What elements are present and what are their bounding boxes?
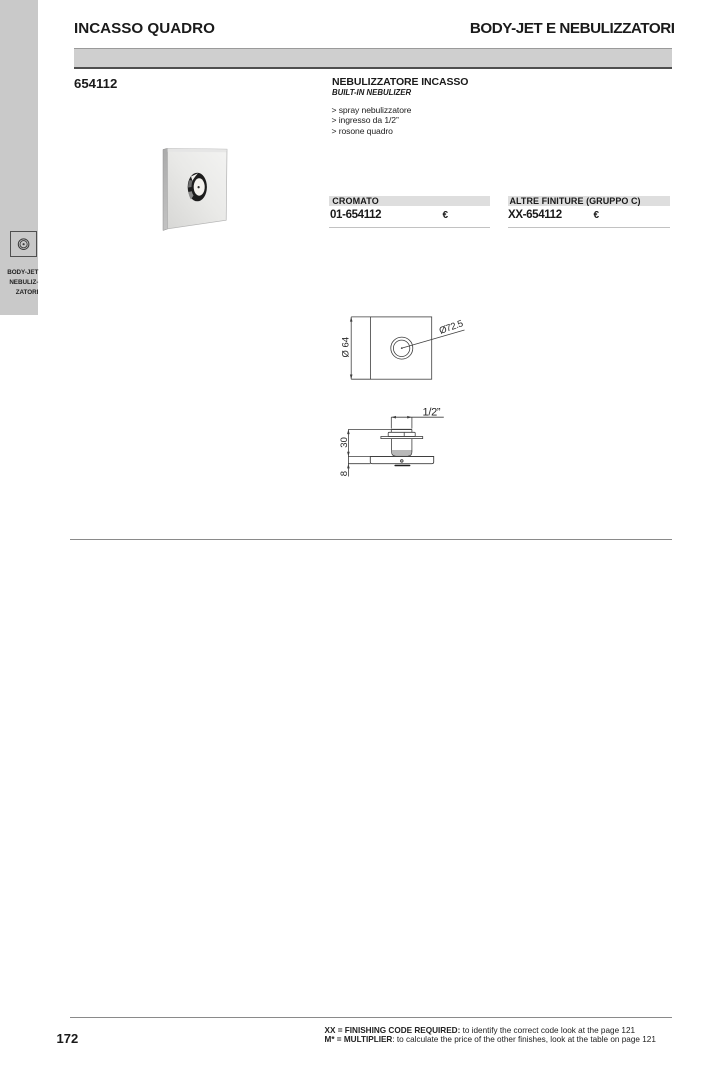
svg-text:1/2”: 1/2” [423, 407, 441, 419]
svg-text:Ø 64: Ø 64 [341, 337, 352, 358]
svg-text:30: 30 [339, 437, 350, 448]
svg-text:8: 8 [339, 471, 350, 476]
